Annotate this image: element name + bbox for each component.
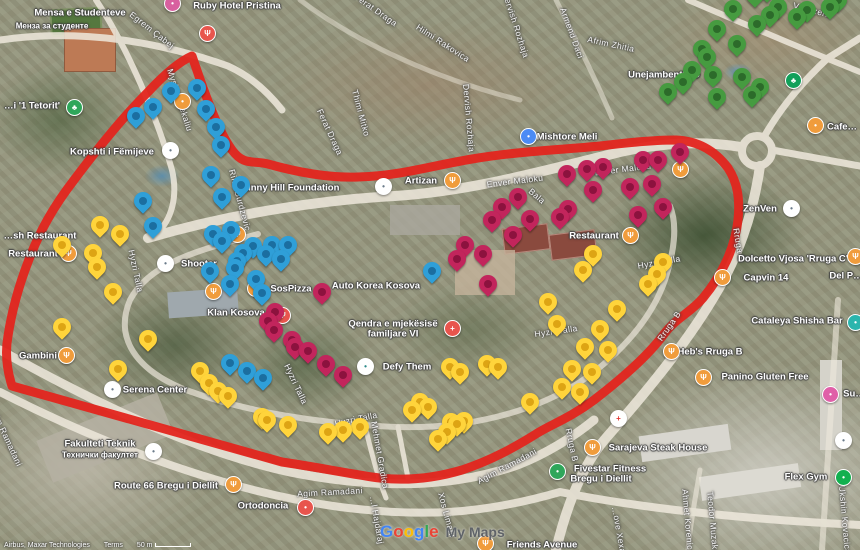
terms-link[interactable]: Terms	[104, 542, 123, 549]
map-pin-magenta[interactable]	[580, 177, 605, 202]
map-pin-green[interactable]	[704, 16, 729, 41]
map-pin-blue[interactable]	[419, 258, 444, 283]
map-pin-magenta[interactable]	[667, 139, 692, 164]
map-pin-blue[interactable]	[228, 172, 253, 197]
imagery-credit: Airbus, Maxar Technologies	[4, 542, 90, 549]
map-pin-blue[interactable]	[209, 184, 234, 209]
map-pin-magenta[interactable]	[309, 279, 334, 304]
map-pin-green[interactable]	[720, 0, 745, 22]
pins-layer	[0, 0, 860, 550]
map-pin-magenta[interactable]	[625, 202, 650, 227]
map-pin-magenta[interactable]	[650, 194, 675, 219]
map-pin-magenta[interactable]	[500, 222, 525, 247]
map-pin-magenta[interactable]	[617, 174, 642, 199]
map-pin-green[interactable]	[704, 84, 729, 109]
google-logo-letter: e	[429, 522, 438, 541]
map-pin-blue[interactable]	[184, 75, 209, 100]
map-pin-blue[interactable]	[198, 162, 223, 187]
map-pin-magenta[interactable]	[554, 161, 579, 186]
google-logo-letter: o	[393, 522, 403, 541]
map-pin-blue[interactable]	[158, 78, 183, 103]
map-pin-yellow[interactable]	[567, 379, 592, 404]
map-pin-yellow[interactable]	[587, 316, 612, 341]
map-pin-yellow[interactable]	[579, 359, 604, 384]
map-pin-green[interactable]	[724, 31, 749, 56]
map-pin-yellow[interactable]	[107, 221, 132, 246]
google-logo: Google	[380, 522, 439, 542]
map-pin-yellow[interactable]	[275, 412, 300, 437]
map-pin-yellow[interactable]	[49, 232, 74, 257]
map-pin-yellow[interactable]	[517, 389, 542, 414]
map-pin-magenta[interactable]	[639, 171, 664, 196]
map-pin-yellow[interactable]	[535, 289, 560, 314]
map-pin-yellow[interactable]	[135, 326, 160, 351]
map-pin-magenta[interactable]	[475, 271, 500, 296]
google-my-maps-watermark: Google My Maps	[380, 522, 505, 542]
scale-bar	[155, 543, 191, 547]
map-pin-blue[interactable]	[140, 213, 165, 238]
map-attribution: Airbus, Maxar Technologies Terms 50 m	[4, 542, 191, 549]
map-pin-blue[interactable]	[130, 188, 155, 213]
map-pin-yellow[interactable]	[105, 356, 130, 381]
map-pin-yellow[interactable]	[87, 212, 112, 237]
google-logo-letter: g	[414, 522, 424, 541]
my-maps-label: My Maps	[446, 524, 505, 540]
map-pin-yellow[interactable]	[100, 279, 125, 304]
map-pin-yellow[interactable]	[49, 314, 74, 339]
map-canvas[interactable]: Egrem ÇabejMyslym RekaliuFerat DragaFera…	[0, 0, 860, 550]
map-pin-yellow[interactable]	[572, 334, 597, 359]
map-pin-magenta[interactable]	[517, 206, 542, 231]
google-logo-letter: G	[380, 522, 393, 541]
map-pin-magenta[interactable]	[645, 147, 670, 172]
scale-label: 50 m	[137, 542, 192, 549]
map-pin-yellow[interactable]	[604, 296, 629, 321]
map-pin-yellow[interactable]	[544, 311, 569, 336]
map-pin-blue[interactable]	[197, 258, 222, 283]
google-logo-letter: o	[404, 522, 414, 541]
